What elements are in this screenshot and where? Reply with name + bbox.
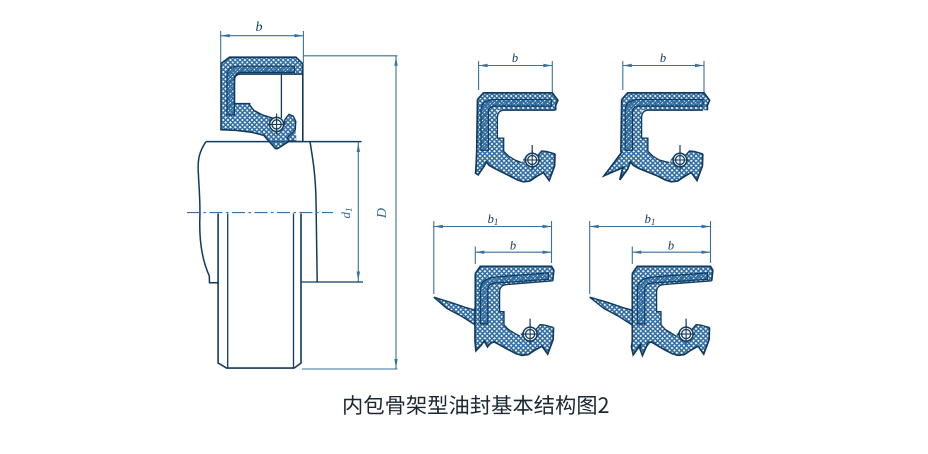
svg-text:b: b <box>510 239 516 253</box>
svg-text:D: D <box>375 208 390 219</box>
svg-text:b: b <box>660 51 666 65</box>
svg-text:b: b <box>512 51 518 65</box>
svg-text:b: b <box>668 239 674 253</box>
svg-text:b: b <box>256 20 263 35</box>
